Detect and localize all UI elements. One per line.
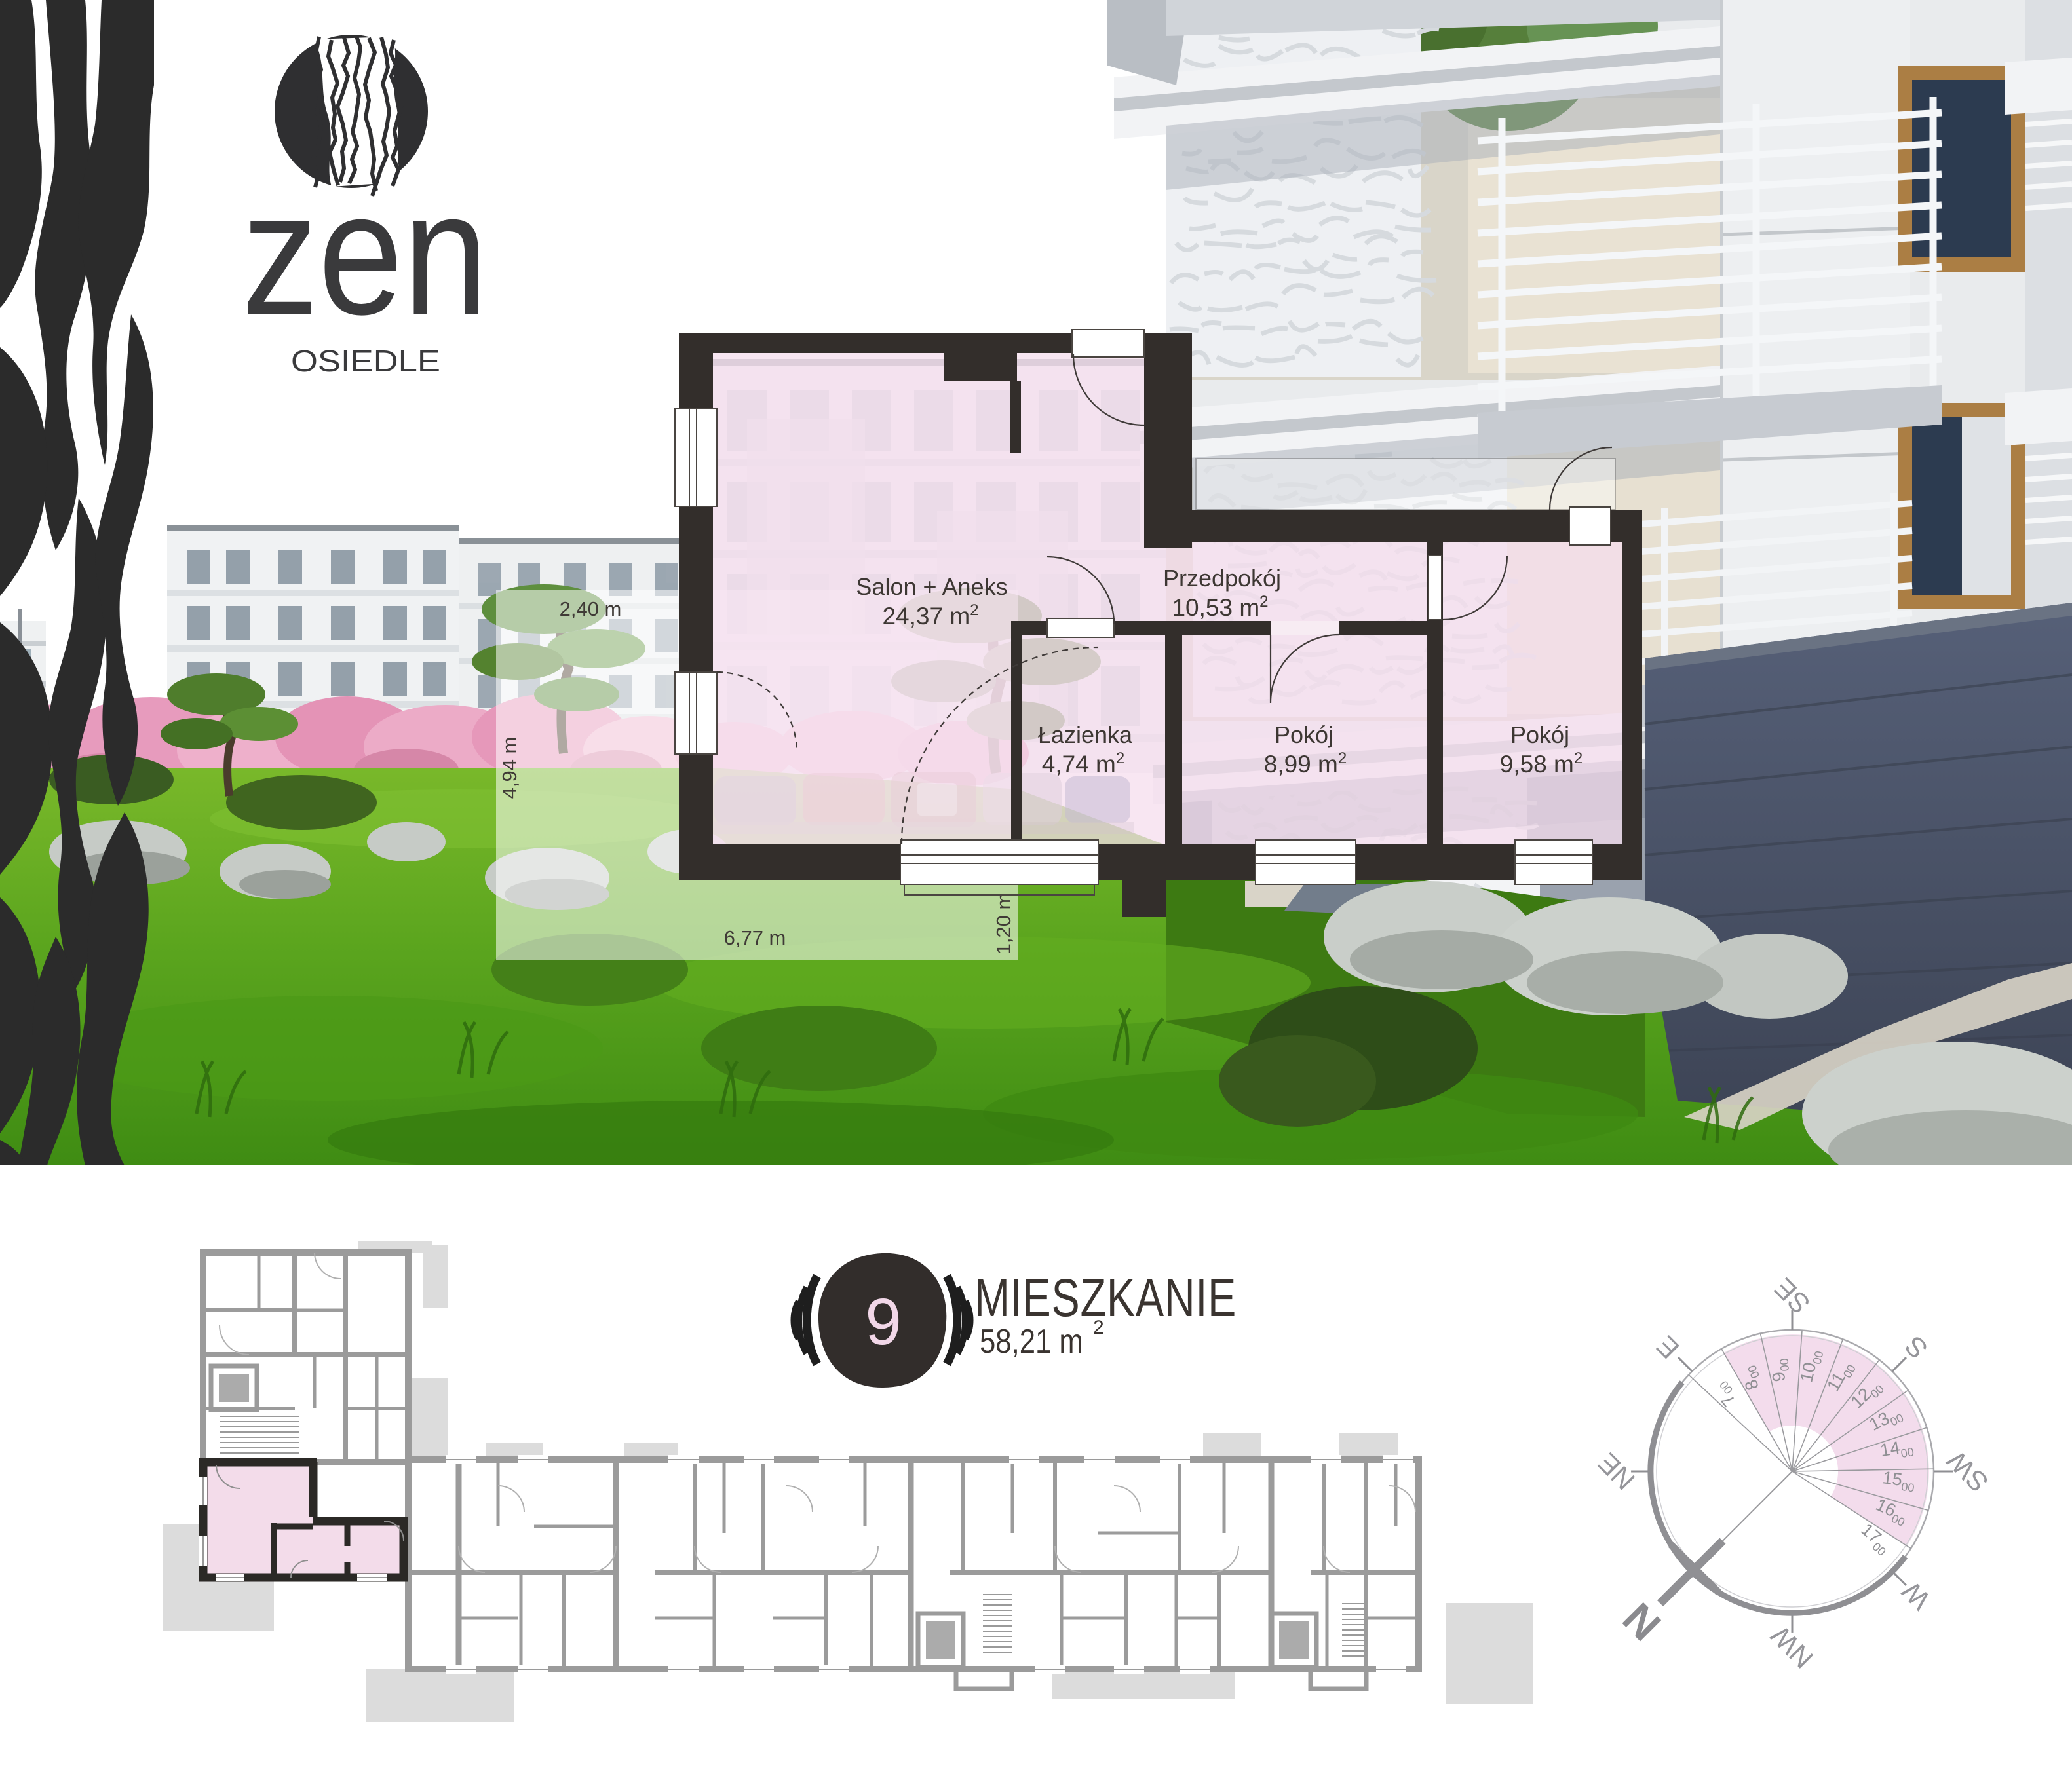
- svg-text:4,74 m2: 4,74 m2: [1042, 749, 1124, 778]
- svg-text:Pokój: Pokój: [1275, 721, 1333, 748]
- svg-text:6,77 m: 6,77 m: [724, 926, 786, 949]
- svg-text:9: 9: [865, 1285, 902, 1359]
- svg-text:Pokój: Pokój: [1510, 721, 1569, 748]
- svg-text:Przedpokój: Przedpokój: [1163, 565, 1281, 592]
- svg-text:Salon + Aneks: Salon + Aneks: [856, 573, 1007, 600]
- svg-text:24,37 m2: 24,37 m2: [882, 601, 978, 630]
- svg-text:8,99 m2: 8,99 m2: [1264, 749, 1347, 778]
- svg-text:MIESZKANIE: MIESZKANIE: [974, 1268, 1237, 1328]
- svg-text:2: 2: [1093, 1317, 1104, 1338]
- svg-text:4,94 m: 4,94 m: [498, 737, 521, 799]
- svg-text:Łazienka: Łazienka: [1038, 721, 1133, 748]
- svg-text:9,58 m2: 9,58 m2: [1500, 749, 1583, 778]
- svg-text:1,20 m: 1,20 m: [992, 893, 1015, 955]
- svg-text:2,40 m: 2,40 m: [560, 597, 622, 620]
- svg-text:zen: zen: [242, 155, 488, 351]
- svg-text:OSIEDLE: OSIEDLE: [291, 344, 440, 378]
- svg-text:10,53 m2: 10,53 m2: [1172, 593, 1268, 621]
- svg-text:58,21 m: 58,21 m: [980, 1323, 1083, 1361]
